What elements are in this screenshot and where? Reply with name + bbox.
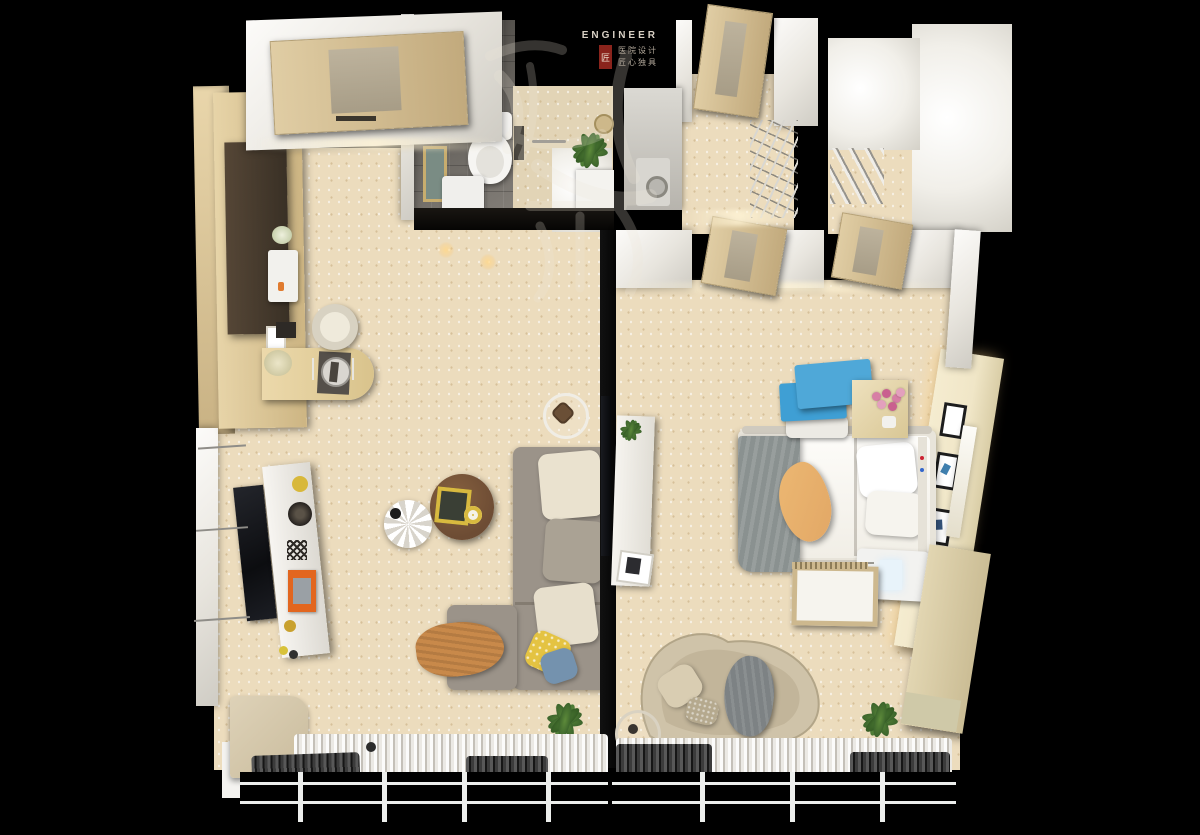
- bench-slats: [792, 562, 868, 569]
- dispenser-light: [278, 282, 284, 291]
- bedroom-tv-edge: [601, 396, 611, 556]
- sofa-cushion-2: [542, 518, 606, 584]
- living-window-post-2: [382, 772, 387, 822]
- living-door-glass: [328, 46, 401, 114]
- living-window-post-1: [298, 772, 303, 822]
- bedroom-window-frame-2: [612, 801, 956, 804]
- counter-flowers: [272, 226, 292, 244]
- orange-box-inner: [293, 578, 311, 604]
- bedroom-window-post-2: [790, 772, 795, 822]
- bed-control-strip: [918, 437, 927, 555]
- bedroom-window: [612, 772, 956, 822]
- shelf-photo-frame: [616, 550, 654, 586]
- living-door-vent: [336, 116, 376, 121]
- bed-pillow-1: [855, 441, 918, 499]
- sofa-cushion-1: [537, 449, 605, 520]
- stair-railing: [830, 148, 884, 204]
- logo-seal: 匠: [599, 45, 612, 69]
- medical-unit-screen: [880, 560, 902, 590]
- bedroom-window-post-1: [700, 772, 705, 822]
- living-window-frame-1: [240, 782, 608, 785]
- flower-floor-lamp: [384, 500, 432, 548]
- logo-brand-text: ENGINEER: [540, 30, 658, 41]
- control-blue-dot: [920, 468, 924, 472]
- bedroom-window-frame-1: [612, 782, 956, 785]
- bedroom-window-post-3: [880, 772, 885, 822]
- water-dispenser: [268, 250, 298, 302]
- console-woven-decor: [287, 540, 307, 560]
- curtain-tieback: [366, 742, 376, 752]
- console-balls: [279, 646, 288, 655]
- control-red-dot: [920, 456, 924, 460]
- console-black-bowl: [288, 502, 312, 526]
- dining-chair-seat: [320, 312, 350, 342]
- entry-threshold-glow: [686, 210, 790, 226]
- bed-pillow-2: [865, 490, 924, 538]
- stairwell-room: [912, 24, 1012, 232]
- yellow-mug: [464, 506, 482, 524]
- left-lower-wall: [196, 428, 218, 706]
- counter-box: [276, 322, 296, 338]
- warm-light-1: [438, 242, 454, 258]
- living-window-post-3: [462, 772, 467, 822]
- logo-tagline-2: 匠心独具: [618, 57, 658, 69]
- logo-tagline-1: 医院设计: [618, 45, 658, 57]
- table-bouquet: [264, 350, 292, 376]
- cutlery-left: [312, 358, 314, 380]
- floorplan-render: ENGINEER 匠 医院设计 匠心独具: [0, 0, 1200, 835]
- shelf-plant: [623, 423, 639, 437]
- flower-lamp-hub: [390, 508, 401, 519]
- corridor-wall: [828, 38, 920, 150]
- console-yellow-vase: [292, 476, 308, 492]
- living-window-frame-2: [240, 801, 608, 804]
- flower-vase: [882, 416, 896, 428]
- cutlery-right: [352, 358, 354, 380]
- console-knob: [284, 620, 296, 632]
- ring-lamp-stem: [628, 724, 638, 734]
- entry-right-wall: [774, 18, 818, 126]
- living-ceiling-glow: [252, 138, 498, 150]
- living-window-post-4: [546, 772, 551, 822]
- living-window: [240, 772, 608, 822]
- studio-logo: ENGINEER 匠 医院设计 匠心独具: [540, 30, 658, 69]
- coat-shoe-rack: [750, 120, 798, 218]
- pink-flowers: [872, 392, 908, 418]
